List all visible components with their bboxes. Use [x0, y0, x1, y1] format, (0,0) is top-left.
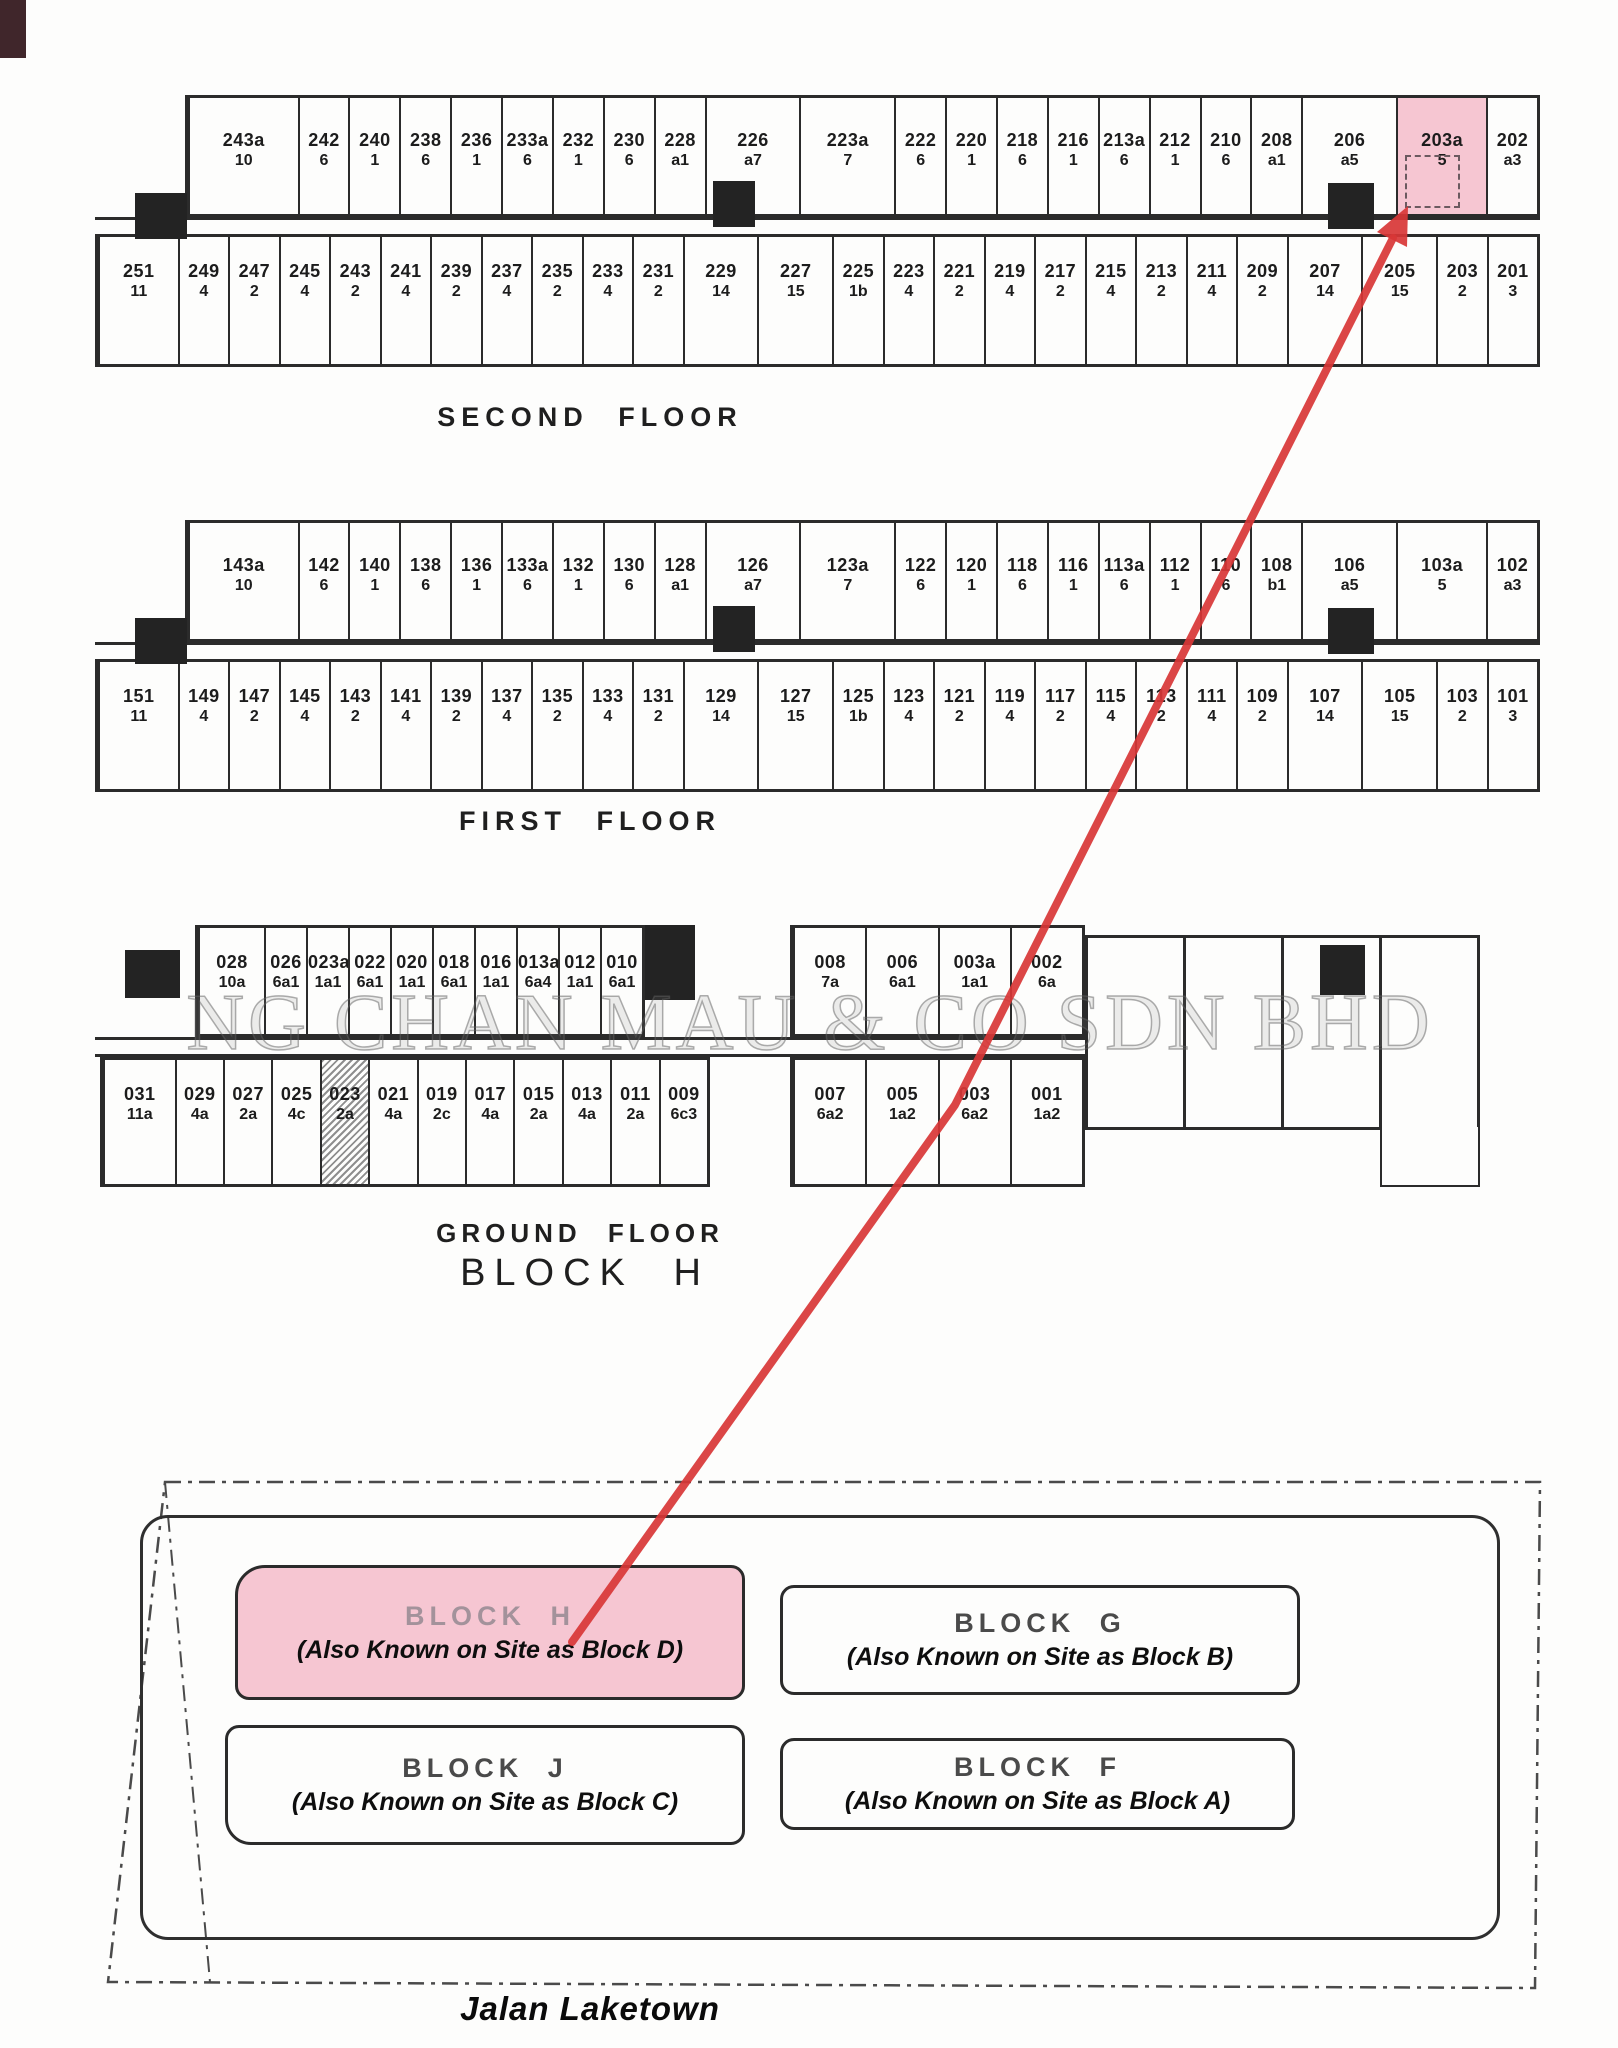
second-floor-bottom-row: 251 11 249 4 247 2 245 4	[95, 237, 1540, 367]
unit-number: 107	[1289, 686, 1362, 707]
unit-type: 5	[1398, 577, 1486, 595]
unit-cell: 005 1a2	[865, 1060, 937, 1184]
unit-cell: 239 2	[430, 237, 481, 364]
unit-cell: 102 a3	[1486, 523, 1537, 639]
unit-number: 136	[452, 555, 501, 576]
unit-number: 021	[370, 1084, 416, 1105]
unit-type: 2	[1137, 283, 1186, 301]
unit-cell: 236 1	[450, 98, 501, 214]
unit-cell: 110 6	[1200, 523, 1251, 639]
unit-number: 127	[759, 686, 832, 707]
unit-type: 1	[554, 577, 603, 595]
unit-number: 120	[947, 555, 996, 576]
unit-cell: 118 6	[996, 523, 1047, 639]
unit-number: 243a	[190, 130, 298, 151]
unit-cell: 139 2	[430, 662, 481, 789]
unit-cell: 112 1	[1149, 523, 1200, 639]
unit-number: 123a	[801, 555, 894, 576]
unit-type: 6a1	[602, 974, 642, 992]
unit-type: 2	[935, 708, 984, 726]
unit-number: 130	[605, 555, 654, 576]
unit-number: 010	[602, 952, 642, 973]
unit-number: 011	[612, 1084, 658, 1105]
unit-type: 1	[350, 152, 399, 170]
unit-number: 012	[560, 952, 600, 973]
unit-type: 4	[584, 283, 633, 301]
unit-number: 131	[634, 686, 683, 707]
right-wing-outline	[1085, 935, 1480, 1130]
unit-number: 211	[1188, 261, 1237, 282]
unit-cell: 138 6	[399, 523, 450, 639]
unit-type: 6c3	[661, 1106, 707, 1124]
unit-type: a3	[1488, 152, 1537, 170]
unit-cell: 029 4a	[175, 1060, 223, 1184]
unit-cell: 210 6	[1200, 98, 1251, 214]
unit-type: 6	[401, 577, 450, 595]
unit-number: 231	[634, 261, 683, 282]
ground-floor-top-left-row: 028 10a 026 6a1 023a 1a1 022	[195, 925, 645, 1037]
unit-type: a5	[1303, 152, 1396, 170]
unit-cell: 023a 1a1	[306, 928, 348, 1034]
unit-type: 4	[382, 283, 431, 301]
unit-type: 4	[1188, 708, 1237, 726]
unit-number: 023	[322, 1084, 368, 1105]
unit-type: 10	[190, 577, 298, 595]
unit-cell: 015 2a	[513, 1060, 561, 1184]
ground-floor-bottom-left-row: 031 11a 029 4a 027 2a 025	[100, 1057, 710, 1187]
unit-cell: 201 3	[1487, 237, 1538, 364]
unit-number: 213a	[1100, 130, 1149, 151]
unit-type: 4	[281, 283, 330, 301]
block-name: BLOCK F	[954, 1752, 1121, 1783]
unit-type: 2	[533, 708, 582, 726]
unit-number: 111	[1188, 686, 1237, 707]
unit-cell: 143a 10	[188, 523, 298, 639]
unit-number: 216	[1049, 130, 1098, 151]
unit-type: 6	[998, 152, 1047, 170]
unit-type: 1	[1049, 152, 1098, 170]
unit-cell: 105 15	[1361, 662, 1436, 789]
unit-type: 6	[1100, 152, 1149, 170]
unit-cell: 213 2	[1135, 237, 1186, 364]
unit-type: 2a	[515, 1106, 561, 1124]
unit-type: 2a	[612, 1106, 658, 1124]
ground-floor-caption: GROUND FLOOR	[320, 1218, 840, 1249]
unit-type: 1a1	[940, 974, 1010, 992]
unit-type: 2	[1036, 708, 1085, 726]
unit-cell: 123a 7	[799, 523, 894, 639]
unit-type: 1a1	[392, 974, 432, 992]
unit-cell: 018 6a1	[432, 928, 474, 1034]
unit-type: 6a1	[434, 974, 474, 992]
unit-type: 1	[452, 577, 501, 595]
unit-cell: 208 a1	[1250, 98, 1301, 214]
unit-cell: 020 1a1	[390, 928, 432, 1034]
stairs-icon	[713, 181, 755, 227]
unit-type: 6a4	[518, 974, 558, 992]
unit-type: 6	[401, 152, 450, 170]
unit-type: 2	[935, 283, 984, 301]
unit-cell: 111 4	[1186, 662, 1237, 789]
unit-number: 025	[273, 1084, 319, 1105]
first-floor-plan: 143a 10 142 6 140 1 138 6	[95, 520, 1540, 792]
unit-number: 206	[1303, 130, 1396, 151]
unit-number: 002	[1012, 952, 1082, 973]
unit-cell: 215 4	[1085, 237, 1136, 364]
unit-number: 015	[515, 1084, 561, 1105]
unit-number: 022	[350, 952, 390, 973]
unit-number: 141	[382, 686, 431, 707]
unit-cell: 227 15	[757, 237, 832, 364]
unit-type: 15	[1363, 283, 1436, 301]
unit-number: 249	[180, 261, 229, 282]
unit-cell: 119 4	[984, 662, 1035, 789]
unit-cell: 026 6a1	[264, 928, 306, 1034]
unit-type: 1	[947, 152, 996, 170]
unit-type: 2a	[225, 1106, 271, 1124]
unit-cell: 113a 6	[1098, 523, 1149, 639]
unit-type: 2	[230, 708, 279, 726]
unit-type: a7	[707, 152, 800, 170]
unit-type: 6a	[1012, 974, 1082, 992]
corridor	[95, 217, 1540, 237]
block-name: BLOCK J	[402, 1753, 568, 1784]
unit-type: 2	[1238, 283, 1287, 301]
unit-number: 212	[1151, 130, 1200, 151]
unit-type: 4	[483, 283, 532, 301]
unit-number: 112	[1151, 555, 1200, 576]
unit-type: 6a1	[867, 974, 937, 992]
unit-number: 102	[1488, 555, 1537, 576]
unit-number: 031	[105, 1084, 175, 1105]
unit-number: 245	[281, 261, 330, 282]
unit-cell: 019 2c	[417, 1060, 465, 1184]
unit-type: 6	[1202, 152, 1251, 170]
stairs-icon	[135, 618, 187, 664]
unit-cell: 207 14	[1287, 237, 1362, 364]
unit-type: 3	[1489, 708, 1538, 726]
unit-type: 1b	[834, 708, 883, 726]
unit-number: 027	[225, 1084, 271, 1105]
unit-cell: 006 6a1	[865, 928, 937, 1034]
unit-cell: 222 6	[894, 98, 945, 214]
unit-cell: 107 14	[1287, 662, 1362, 789]
unit-cell: 013a 6a4	[516, 928, 558, 1034]
unit-number: 230	[605, 130, 654, 151]
unit-number: 028	[200, 952, 264, 973]
unit-type: 10a	[200, 974, 264, 992]
unit-type: 6	[896, 577, 945, 595]
unit-cell: 243 2	[329, 237, 380, 364]
unit-number: 029	[177, 1084, 223, 1105]
unit-type: 2	[331, 283, 380, 301]
unit-type: 7	[801, 152, 894, 170]
unit-number: 210	[1202, 130, 1251, 151]
unit-number: 239	[432, 261, 481, 282]
unit-type: 5	[1398, 152, 1486, 170]
unit-cell: 217 2	[1034, 237, 1085, 364]
unit-type: 1a1	[308, 974, 348, 992]
unit-cell: 142 6	[298, 523, 349, 639]
unit-cell: 013 4a	[562, 1060, 610, 1184]
unit-number: 238	[401, 130, 450, 151]
unit-number: 222	[896, 130, 945, 151]
street-name: Jalan Laketown	[330, 1990, 850, 2028]
unit-number: 207	[1289, 261, 1362, 282]
auction-floor-plan-page: 243a 10 242 6 240 1 238 6	[0, 0, 1618, 2048]
unit-type: 6a1	[266, 974, 306, 992]
unit-cell: 136 1	[450, 523, 501, 639]
unit-number: 247	[230, 261, 279, 282]
unit-type: 4	[180, 283, 229, 301]
unit-cell: 130 6	[603, 523, 654, 639]
unit-cell: 008 7a	[793, 928, 865, 1034]
unit-type: 2	[432, 283, 481, 301]
unit-type: 2	[331, 708, 380, 726]
unit-cell: 003a 1a1	[938, 928, 1010, 1034]
unit-number: 225	[834, 261, 883, 282]
unit-cell: 221 2	[933, 237, 984, 364]
site-block-g: BLOCK G (Also Known on Site as Block B)	[780, 1585, 1300, 1695]
unit-number: 142	[300, 555, 349, 576]
unit-cell: 240 1	[348, 98, 399, 214]
unit-cell: 223a 7	[799, 98, 894, 214]
block-name: BLOCK G	[954, 1608, 1126, 1639]
unit-number: 202	[1488, 130, 1537, 151]
unit-cell: 011 2a	[610, 1060, 658, 1184]
unit-number: 126	[707, 555, 800, 576]
unit-cell: 108 b1	[1250, 523, 1301, 639]
unit-cell: 023 2a	[320, 1060, 368, 1184]
unit-type: 1	[1049, 577, 1098, 595]
unit-cell: 247 2	[228, 237, 279, 364]
unit-type: 6	[300, 577, 349, 595]
unit-number: 145	[281, 686, 330, 707]
block-aka: (Also Known on Site as Block D)	[297, 1636, 683, 1665]
unit-number: 229	[685, 261, 758, 282]
unit-number: 218	[998, 130, 1047, 151]
unit-number: 118	[998, 555, 1047, 576]
unit-cell: 242 6	[298, 98, 349, 214]
unit-type: 4	[1087, 708, 1136, 726]
unit-number: 119	[986, 686, 1035, 707]
unit-number: 018	[434, 952, 474, 973]
second-floor-plan: 243a 10 242 6 240 1 238 6	[95, 95, 1540, 367]
unit-number: 251	[100, 261, 178, 282]
unit-type: 14	[1289, 708, 1362, 726]
unit-cell: 229 14	[683, 237, 758, 364]
second-floor-caption: SECOND FLOOR	[330, 402, 850, 433]
unit-cell: 213a 6	[1098, 98, 1149, 214]
unit-number: 143	[331, 686, 380, 707]
unit-number: 221	[935, 261, 984, 282]
unit-number: 237	[483, 261, 532, 282]
stairs-icon	[1328, 183, 1374, 229]
site-block-f: BLOCK F (Also Known on Site as Block A)	[780, 1738, 1295, 1830]
unit-type: a5	[1303, 577, 1396, 595]
unit-number: 147	[230, 686, 279, 707]
unit-number: 109	[1238, 686, 1287, 707]
unit-cell: 203a 5	[1396, 98, 1486, 214]
unit-number: 149	[180, 686, 229, 707]
unit-number: 233	[584, 261, 633, 282]
unit-cell: 010 6a1	[600, 928, 642, 1034]
unit-type: 1b	[834, 283, 883, 301]
unit-cell: 143 2	[329, 662, 380, 789]
unit-number: 240	[350, 130, 399, 151]
unit-cell: 212 1	[1149, 98, 1200, 214]
unit-type: 1	[947, 577, 996, 595]
ground-floor-bottom-right-row: 007 6a2 005 1a2 003 6a2 001	[790, 1057, 1085, 1187]
unit-cell: 243a 10	[188, 98, 298, 214]
unit-number: 116	[1049, 555, 1098, 576]
stairs-icon	[1328, 608, 1374, 654]
unit-cell: 141 4	[380, 662, 431, 789]
unit-number: 235	[533, 261, 582, 282]
unit-cell: 133a 6	[501, 523, 552, 639]
unit-number: 208	[1252, 130, 1301, 151]
unit-cell: 151 11	[98, 662, 178, 789]
unit-type: 6	[300, 152, 349, 170]
site-block-j: BLOCK J (Also Known on Site as Block C)	[225, 1725, 745, 1845]
unit-cell: 249 4	[178, 237, 229, 364]
unit-type: 2a	[322, 1106, 368, 1124]
unit-cell: 211 4	[1186, 237, 1237, 364]
unit-number: 007	[795, 1084, 865, 1105]
unit-cell: 225 1b	[832, 237, 883, 364]
unit-number: 020	[392, 952, 432, 973]
unit-cell: 031 11a	[103, 1060, 175, 1184]
stairs-icon	[713, 606, 755, 652]
unit-cell: 116 1	[1047, 523, 1098, 639]
unit-cell: 233 4	[582, 237, 633, 364]
unit-number: 217	[1036, 261, 1085, 282]
unit-cell: 122 6	[894, 523, 945, 639]
unit-number: 215	[1087, 261, 1136, 282]
unit-number: 115	[1087, 686, 1136, 707]
unit-type: 3	[1489, 283, 1538, 301]
unit-type: 1a2	[867, 1106, 937, 1124]
unit-number: 236	[452, 130, 501, 151]
unit-type: 4	[584, 708, 633, 726]
unit-type: 4	[1087, 283, 1136, 301]
unit-cell: 216 1	[1047, 98, 1098, 214]
unit-cell: 223 4	[883, 237, 934, 364]
unit-cell: 022 6a1	[348, 928, 390, 1034]
unit-type: 2	[634, 283, 683, 301]
site-block-h: BLOCK H (Also Known on Site as Block D)	[235, 1565, 745, 1700]
stairs-icon	[645, 925, 695, 1000]
unit-type: 15	[759, 283, 832, 301]
unit-type: 4	[885, 708, 934, 726]
unit-cell: 025 4c	[271, 1060, 319, 1184]
unit-cell: 001 1a2	[1010, 1060, 1082, 1184]
unit-number: 113a	[1100, 555, 1149, 576]
first-floor-bottom-row: 151 11 149 4 147 2 145 4	[95, 662, 1540, 792]
unit-number: 005	[867, 1084, 937, 1105]
unit-number: 241	[382, 261, 431, 282]
unit-type: 4	[180, 708, 229, 726]
unit-number: 242	[300, 130, 349, 151]
unit-type: b1	[1252, 577, 1301, 595]
unit-cell: 016 1a1	[474, 928, 516, 1034]
unit-number: 113	[1137, 686, 1186, 707]
unit-number: 203	[1438, 261, 1487, 282]
unit-type: 6	[503, 152, 552, 170]
unit-type: 1	[554, 152, 603, 170]
unit-type: 6a1	[350, 974, 390, 992]
unit-cell: 209 2	[1236, 237, 1287, 364]
unit-type: a1	[1252, 152, 1301, 170]
unit-cell: 233a 6	[501, 98, 552, 214]
unit-cell: 121 2	[933, 662, 984, 789]
unit-cell: 149 4	[178, 662, 229, 789]
unit-cell: 231 2	[632, 237, 683, 364]
unit-type: 4a	[370, 1106, 416, 1124]
site-plan: BLOCK H (Also Known on Site as Block D) …	[95, 1470, 1545, 1995]
unit-cell: 203 2	[1436, 237, 1487, 364]
unit-number: 228	[656, 130, 705, 151]
unit-number: 106	[1303, 555, 1396, 576]
unit-type: 6a2	[795, 1106, 865, 1124]
ground-floor-top-right-row: 008 7a 006 6a1 003a 1a1 002	[790, 925, 1085, 1037]
unit-cell: 021 4a	[368, 1060, 416, 1184]
unit-type: 6	[605, 577, 654, 595]
unit-cell: 251 11	[98, 237, 178, 364]
unit-type: 6	[503, 577, 552, 595]
unit-type: 4a	[177, 1106, 223, 1124]
unit-number: 233a	[503, 130, 552, 151]
unit-number: 026	[266, 952, 306, 973]
unit-type: 1a1	[476, 974, 516, 992]
unit-type: 14	[685, 283, 758, 301]
unit-number: 101	[1489, 686, 1538, 707]
unit-type: 2	[1438, 283, 1487, 301]
unit-cell: 002 6a	[1010, 928, 1082, 1034]
ground-floor-plan: 028 10a 026 6a1 023a 1a1 022	[95, 925, 1485, 1187]
block-aka: (Also Known on Site as Block A)	[845, 1787, 1230, 1816]
unit-cell: 220 1	[945, 98, 996, 214]
unit-cell: 132 1	[552, 523, 603, 639]
unit-number: 123	[885, 686, 934, 707]
unit-cell: 145 4	[279, 662, 330, 789]
unit-type: 1a2	[1012, 1106, 1082, 1124]
stairs-icon	[1320, 945, 1365, 995]
unit-type: 1	[1151, 152, 1200, 170]
unit-number: 209	[1238, 261, 1287, 282]
unit-type: 6	[1202, 577, 1251, 595]
unit-number: 133	[584, 686, 633, 707]
unit-type: 2c	[419, 1106, 465, 1124]
unit-type: 7a	[795, 974, 865, 992]
unit-number: 223	[885, 261, 934, 282]
unit-number: 219	[986, 261, 1035, 282]
unit-type: 1	[452, 152, 501, 170]
unit-type: 4	[483, 708, 532, 726]
unit-number: 121	[935, 686, 984, 707]
unit-cell: 241 4	[380, 237, 431, 364]
unit-type: 4a	[467, 1106, 513, 1124]
unit-type: 2	[1438, 708, 1487, 726]
unit-cell: 237 4	[481, 237, 532, 364]
unit-type: 6a2	[940, 1106, 1010, 1124]
unit-cell: 133 4	[582, 662, 633, 789]
unit-type: 6	[1100, 577, 1149, 595]
unit-type: 6	[605, 152, 654, 170]
unit-type: 10	[190, 152, 298, 170]
unit-number: 151	[100, 686, 178, 707]
unit-cell: 125 1b	[832, 662, 883, 789]
